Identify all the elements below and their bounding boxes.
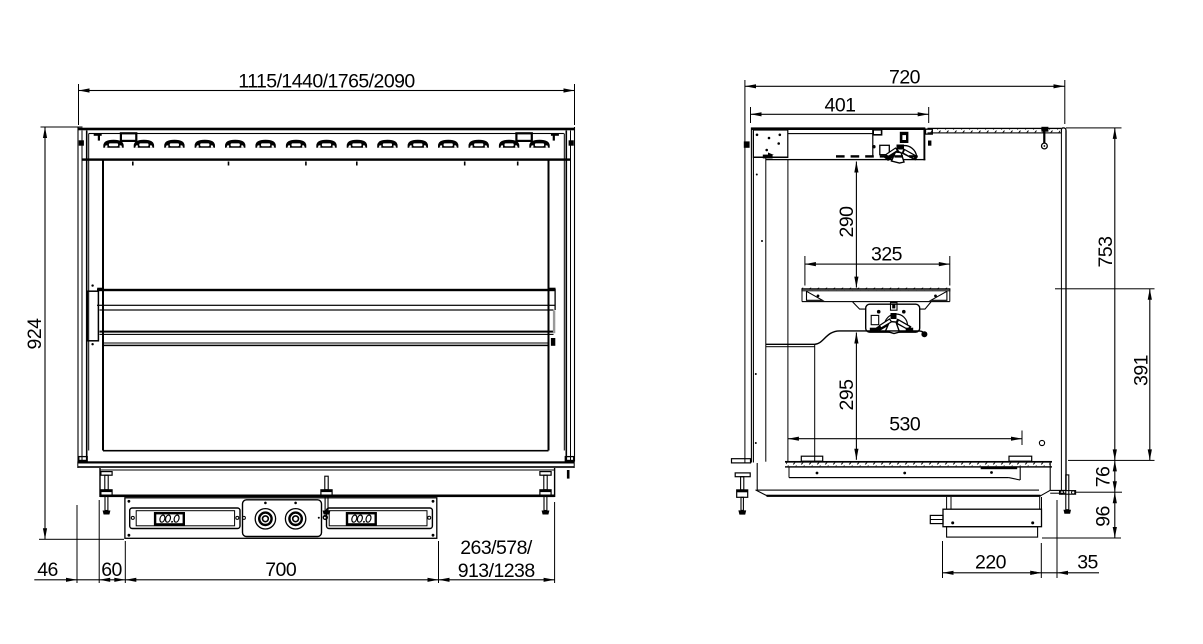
svg-text:1115/1440/1765/2090: 1115/1440/1765/2090 bbox=[238, 71, 415, 93]
svg-text:295: 295 bbox=[836, 379, 858, 411]
svg-text:46: 46 bbox=[37, 559, 58, 581]
svg-text:96: 96 bbox=[1093, 506, 1115, 527]
svg-text:924: 924 bbox=[24, 318, 46, 350]
svg-text:913/1238: 913/1238 bbox=[458, 560, 535, 582]
svg-text:220: 220 bbox=[975, 552, 1007, 574]
svg-text:35: 35 bbox=[1077, 552, 1098, 574]
svg-text:720: 720 bbox=[889, 67, 921, 89]
svg-text:60: 60 bbox=[101, 559, 122, 581]
svg-text:290: 290 bbox=[836, 206, 858, 238]
svg-text:700: 700 bbox=[265, 559, 297, 581]
svg-text:401: 401 bbox=[825, 95, 856, 117]
svg-text:530: 530 bbox=[889, 413, 921, 435]
svg-text:325: 325 bbox=[871, 243, 903, 265]
svg-text:391: 391 bbox=[1131, 355, 1153, 386]
svg-text:263/578/: 263/578/ bbox=[460, 537, 533, 559]
svg-text:76: 76 bbox=[1093, 467, 1115, 488]
svg-text:753: 753 bbox=[1095, 237, 1117, 268]
